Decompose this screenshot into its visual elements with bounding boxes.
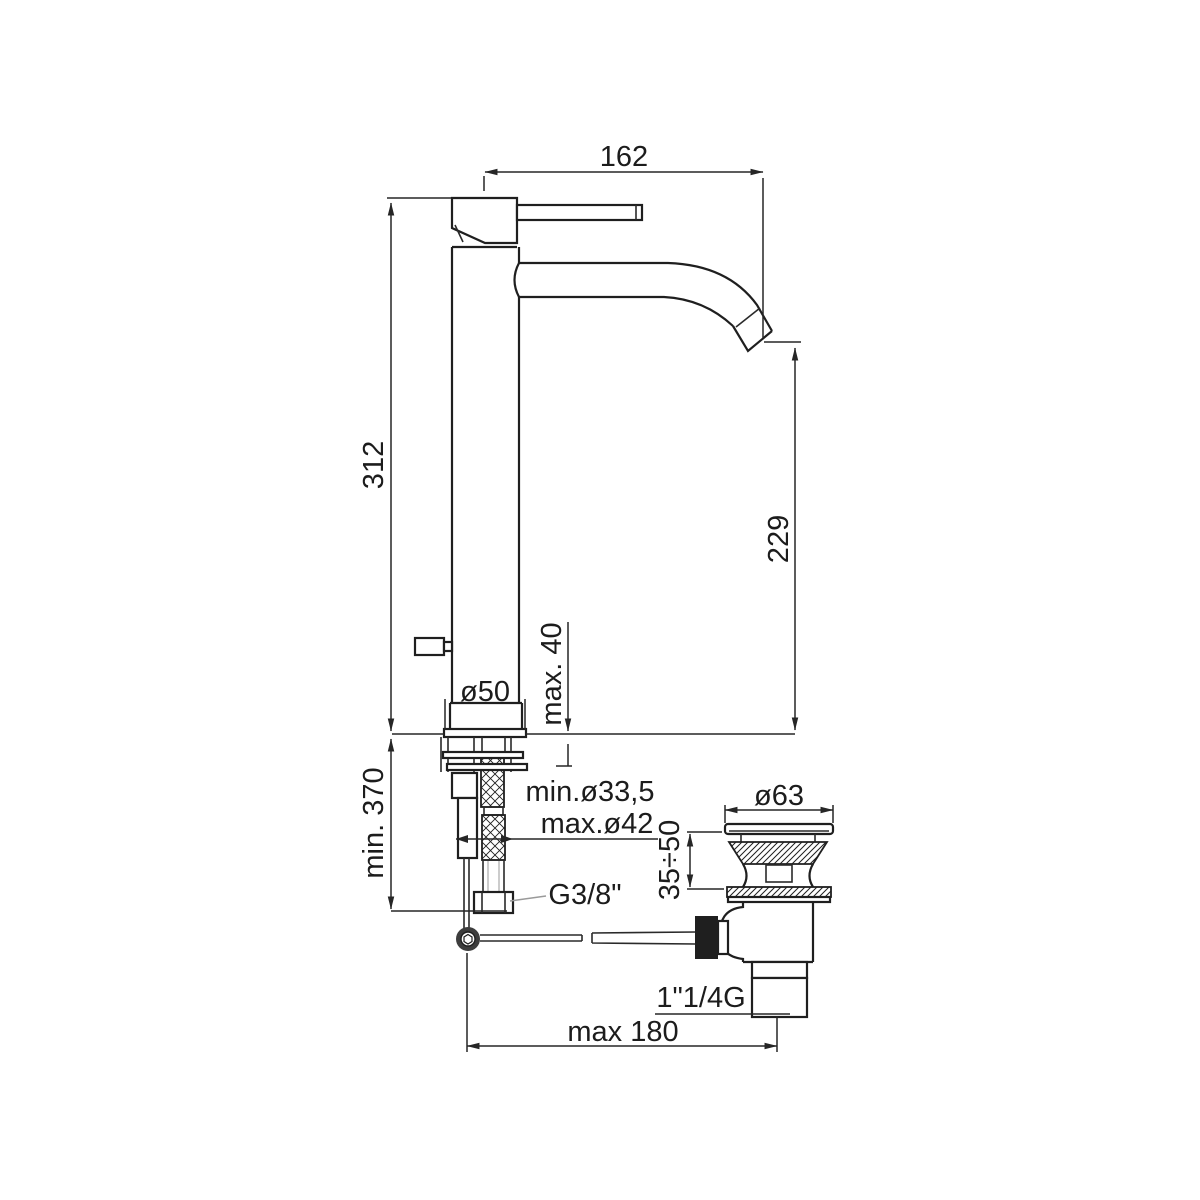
basin-section-upper-hatch [729,842,827,864]
leader-line [510,896,546,901]
waste-waist-left [743,864,747,887]
dim-label-total-height: 312 [358,441,390,489]
hose-sleeve-shading [488,861,499,891]
dim-max-deck-thickness: max. 40 [536,622,572,766]
handle-bar [517,205,642,220]
spout-tip-face [733,326,772,351]
dim-label-tap-hole-min: min.ø33,5 [526,776,655,808]
dim-spout-reach: 162 [484,141,763,338]
mounting-hardware [441,737,527,913]
extension-lines [687,832,724,889]
dim-supply-thread: G3/8" [510,879,622,911]
knob-stem [444,642,452,651]
dim-label-min-clearance: min. 370 [358,767,390,878]
dim-spout-outlet-height: 229 [763,342,801,730]
aerator-line [736,308,760,327]
spout-bottom-curve [519,297,733,326]
hole-arrow-right [501,835,513,843]
spout-root-arc [515,263,520,297]
dim-label-spout-reach: 162 [600,141,648,173]
faucet-head [452,198,517,243]
waste-plug-cap [725,824,833,834]
dim-label-max-deck-thickness: max. 40 [536,622,568,725]
horseshoe-washer [443,752,523,758]
faucet-base [444,703,526,737]
vertical-pull-rod [464,858,469,928]
basin-section-lower-hatch [727,887,831,897]
supply-hose-nut [474,892,513,913]
rod-guide-nut [452,773,477,798]
dim-label-base-diameter: ø50 [460,676,510,708]
dim-label-supply-thread: G3/8" [548,879,621,911]
knob-body [415,638,444,655]
lower-extent-tick [556,744,572,766]
plug-neck-lines [741,834,815,842]
technical-drawing-canvas: 162 312 229 max. 40 ø50 min. 370 min.ø33… [0,0,1200,1200]
waste-body [720,902,813,962]
rod-joint-collar [718,921,728,954]
dim-label-rod-max-reach: max 180 [567,1016,678,1048]
rod-guide-sleeve [458,798,477,858]
overflow-slot [766,865,792,882]
dim-label-tap-hole-max: max.ø42 [541,808,654,840]
waste-waist-right [810,864,814,887]
horizontal-rod-segment-2 [592,932,696,944]
lever-handle [517,205,642,220]
spout [519,263,772,351]
mounting-nut-washer [447,764,527,770]
faucet-dimension-drawing: 162 312 229 max. 40 ø50 min. 370 min.ø33… [0,0,1200,1200]
popup-rod-knob [415,638,452,655]
waste-seal-flange [728,897,830,902]
outlet-threaded-pipe [752,978,807,1017]
dim-label-waste-outlet-thread: 1"1/4G [656,982,745,1014]
extension-lines [484,176,763,338]
hose-end-sleeve [483,860,504,892]
dim-waste-flange-diameter: ø63 [725,780,833,823]
hose-collar [484,807,503,815]
base-flange [444,729,526,737]
dim-label-basin-thickness-range: 35÷50 [654,820,686,900]
outlet-collar [752,962,807,978]
dim-label-waste-flange-diameter: ø63 [754,780,804,812]
cartridge-head-outline [452,198,517,243]
rod-joint-black-ring [695,916,718,959]
dim-label-spout-outlet-height: 229 [763,515,795,563]
horizontal-rod-segment-1 [480,935,582,941]
faucet-body-column [452,247,519,703]
dim-basin-thickness-range: 35÷50 [654,820,724,900]
